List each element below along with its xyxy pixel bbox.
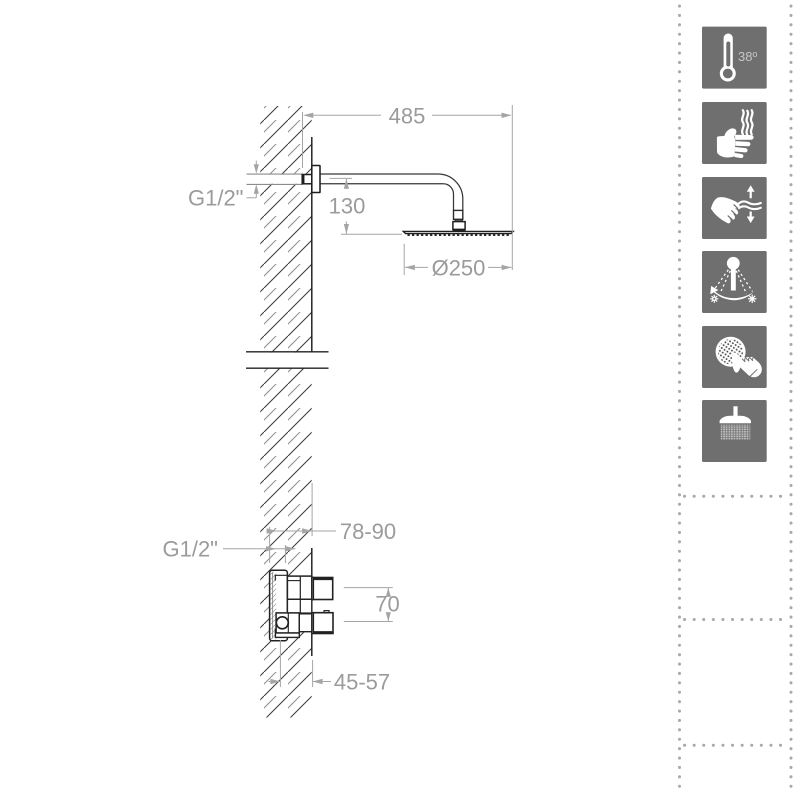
svg-text:Ø250: Ø250: [432, 256, 486, 281]
svg-text:485: 485: [389, 104, 426, 129]
svg-text:45-57: 45-57: [334, 670, 390, 695]
svg-text:130: 130: [329, 194, 366, 219]
svg-text:38º: 38º: [738, 49, 757, 64]
svg-text:78-90: 78-90: [340, 519, 396, 544]
svg-text:G1/2": G1/2": [188, 186, 244, 211]
svg-text:70: 70: [375, 592, 399, 617]
svg-text:G1/2": G1/2": [162, 537, 218, 562]
